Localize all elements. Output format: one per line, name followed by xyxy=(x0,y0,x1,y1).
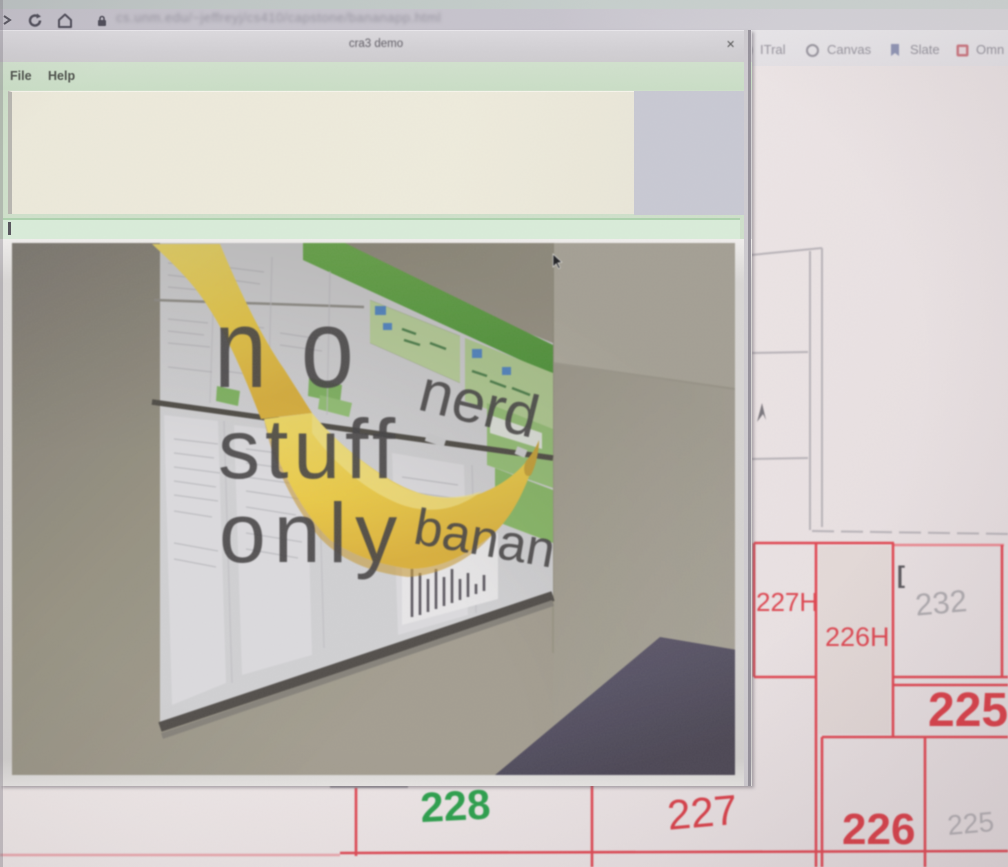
svg-text:227H: 227H xyxy=(756,587,818,617)
svg-text:226: 226 xyxy=(842,805,915,854)
svg-text:232: 232 xyxy=(914,583,969,622)
svg-text:[: [ xyxy=(897,562,905,589)
svg-text:227: 227 xyxy=(665,786,739,839)
svg-text:226H: 226H xyxy=(825,622,890,652)
svg-text:225: 225 xyxy=(928,684,1008,737)
svg-text:225: 225 xyxy=(946,806,995,841)
svg-text:228: 228 xyxy=(419,780,491,831)
